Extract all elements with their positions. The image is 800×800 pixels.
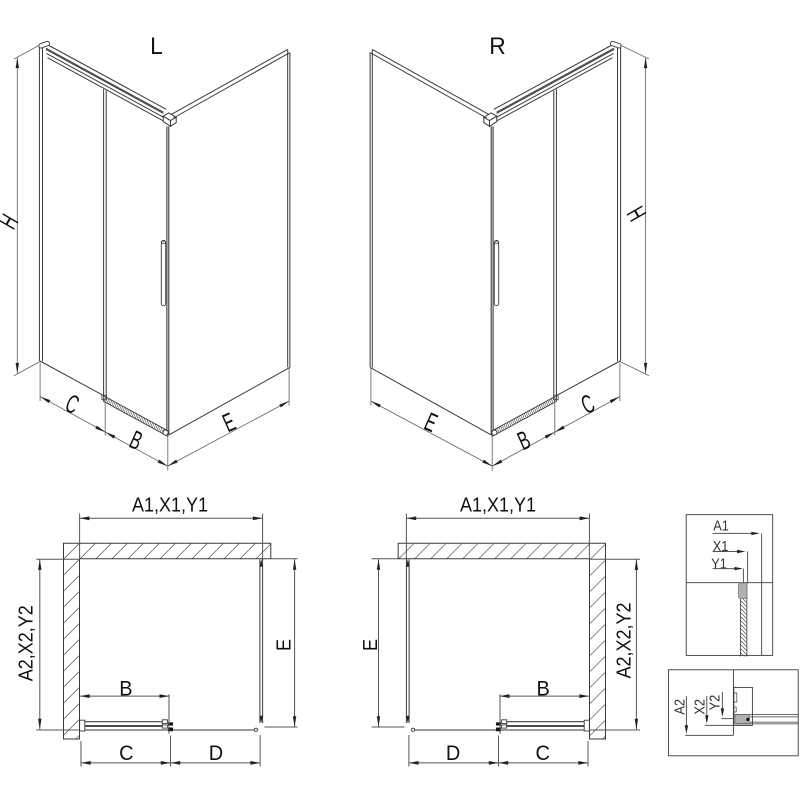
svg-text:E: E xyxy=(218,407,239,438)
svg-text:B: B xyxy=(125,425,146,456)
svg-text:H: H xyxy=(621,202,652,226)
svg-text:Y2: Y2 xyxy=(706,695,723,711)
svg-text:A1: A1 xyxy=(713,517,729,534)
svg-text:A2,X2,Y2: A2,X2,Y2 xyxy=(614,602,636,678)
svg-text:E: E xyxy=(274,639,296,651)
svg-text:C: C xyxy=(61,389,83,420)
svg-text:E: E xyxy=(360,639,382,651)
svg-text:C: C xyxy=(577,389,599,420)
svg-text:A1,X1,Y1: A1,X1,Y1 xyxy=(132,495,208,517)
svg-text:A1,X1,Y1: A1,X1,Y1 xyxy=(460,495,536,517)
svg-text:B: B xyxy=(513,425,534,456)
svg-text:A2,X2,Y2: A2,X2,Y2 xyxy=(16,605,38,681)
svg-text:B: B xyxy=(119,677,132,701)
svg-text:C: C xyxy=(535,741,549,765)
svg-text:A2: A2 xyxy=(670,699,687,715)
svg-text:D: D xyxy=(209,741,223,765)
svg-text:L: L xyxy=(150,33,163,60)
svg-text:H: H xyxy=(0,210,24,234)
svg-text:C: C xyxy=(119,741,133,765)
svg-text:E: E xyxy=(420,407,441,438)
svg-text:B: B xyxy=(536,677,549,701)
svg-text:D: D xyxy=(446,741,460,765)
svg-text:R: R xyxy=(489,33,505,60)
